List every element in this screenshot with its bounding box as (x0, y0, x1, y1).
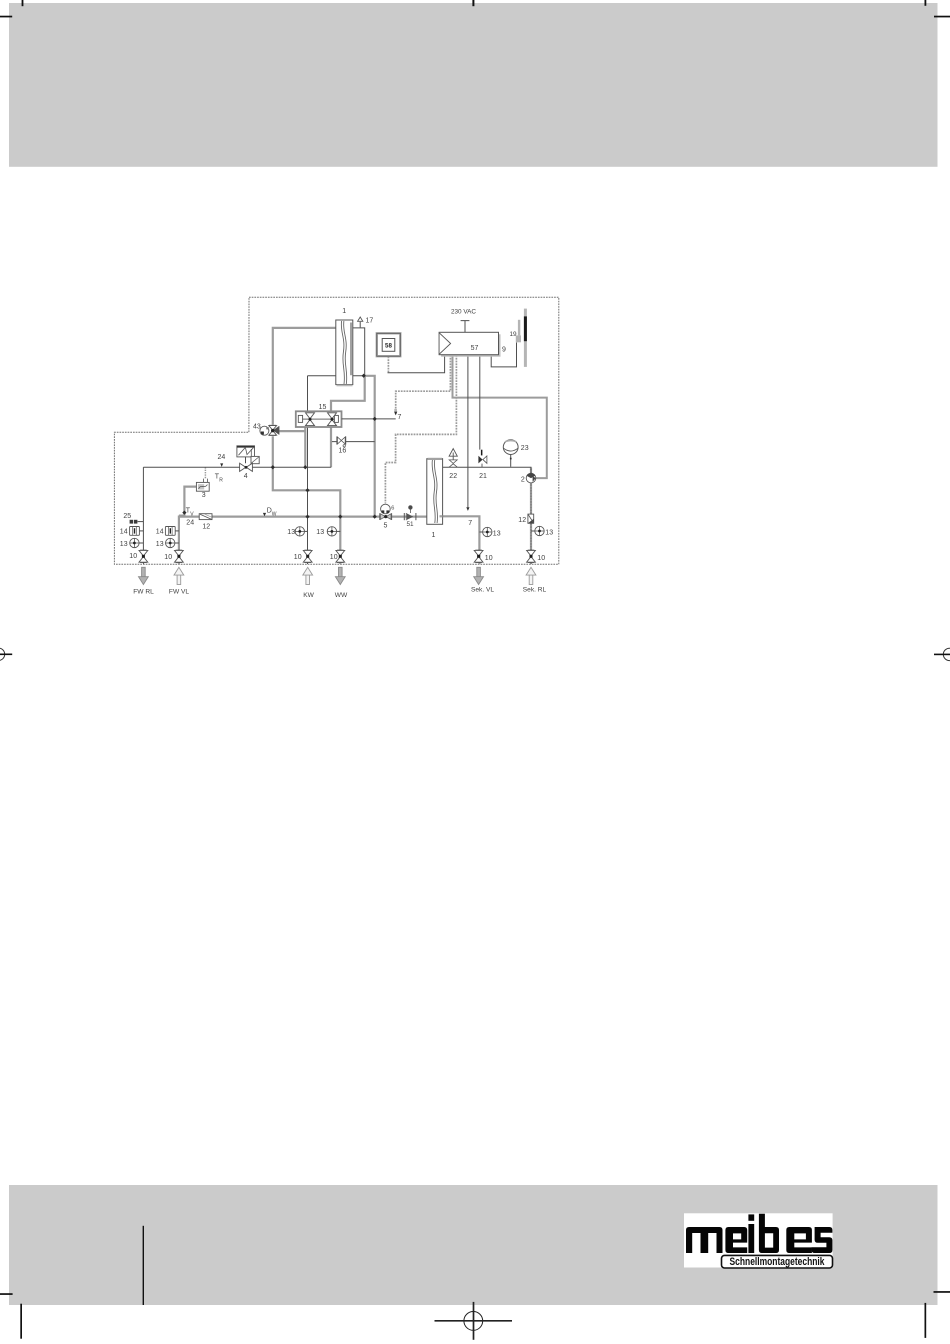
svg-text:13: 13 (545, 529, 553, 536)
svg-text:57: 57 (471, 345, 479, 352)
svg-text:13: 13 (493, 530, 501, 537)
svg-text:43: 43 (253, 424, 261, 431)
svg-text:12: 12 (202, 523, 210, 530)
svg-text:51: 51 (406, 521, 414, 528)
svg-text:5: 5 (384, 523, 388, 530)
svg-text:WW: WW (335, 592, 348, 599)
svg-text:10: 10 (129, 553, 137, 560)
svg-text:13: 13 (120, 541, 128, 548)
svg-text:9: 9 (502, 347, 506, 354)
svg-text:21: 21 (479, 473, 487, 480)
svg-text:10: 10 (294, 554, 302, 561)
svg-text:KW: KW (303, 592, 314, 599)
svg-text:Sek. RL: Sek. RL (523, 587, 547, 594)
svg-text:4: 4 (244, 473, 248, 480)
svg-text:FW RL: FW RL (133, 589, 154, 596)
svg-text:13: 13 (287, 529, 295, 536)
svg-text:12: 12 (518, 517, 526, 524)
svg-text:19: 19 (510, 331, 518, 338)
svg-text:23: 23 (521, 445, 529, 452)
svg-text:2: 2 (521, 477, 525, 484)
svg-text:10: 10 (164, 554, 172, 561)
svg-text:25: 25 (123, 513, 131, 520)
svg-text:24: 24 (218, 454, 226, 461)
svg-text:13: 13 (156, 541, 164, 548)
svg-text:W: W (272, 511, 277, 517)
svg-text:FW VL: FW VL (169, 589, 189, 596)
svg-text:1: 1 (432, 532, 436, 539)
svg-text:17: 17 (366, 318, 374, 325)
svg-text:7: 7 (468, 520, 472, 527)
svg-text:14: 14 (120, 529, 128, 536)
svg-text:Sek. VL: Sek. VL (471, 587, 494, 594)
svg-text:230 VAC: 230 VAC (451, 309, 476, 316)
svg-text:R: R (219, 478, 223, 484)
svg-text:14: 14 (156, 529, 164, 536)
svg-text:1: 1 (342, 308, 346, 315)
svg-text:15: 15 (319, 404, 327, 411)
svg-text:24: 24 (186, 519, 194, 526)
svg-text:22: 22 (449, 473, 457, 480)
svg-text:10: 10 (537, 555, 545, 562)
svg-text:6: 6 (391, 505, 394, 511)
svg-text:10: 10 (330, 554, 338, 561)
svg-text:16: 16 (339, 447, 347, 454)
svg-text:Schnellmontagetechnik: Schnellmontagetechnik (730, 1256, 826, 1268)
svg-text:10: 10 (485, 555, 493, 562)
svg-text:3: 3 (202, 492, 206, 499)
svg-text:58: 58 (385, 343, 392, 350)
svg-text:7: 7 (398, 414, 402, 421)
svg-text:13: 13 (316, 529, 324, 536)
